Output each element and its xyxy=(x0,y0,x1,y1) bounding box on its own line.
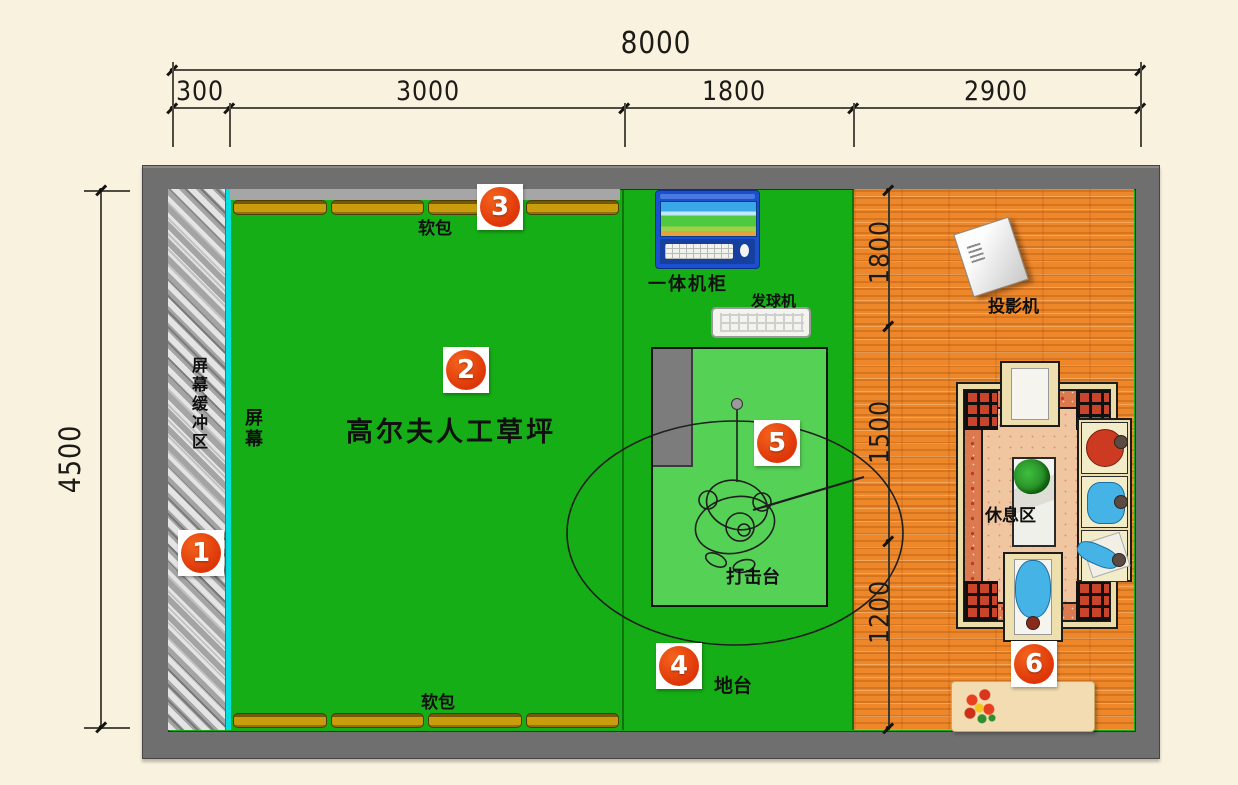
dim-extension xyxy=(229,103,231,147)
label-soft-pack-bottom: 软包 xyxy=(421,688,455,713)
cabinet-top-bar xyxy=(660,194,755,199)
dim-depth-1500: 1500 xyxy=(865,400,896,464)
dim-line-segments xyxy=(172,107,1140,109)
sofa-cushion xyxy=(1081,476,1128,528)
ball-machine-grid xyxy=(720,313,804,332)
tee-mat xyxy=(653,349,693,467)
soft-pack-segment xyxy=(233,713,327,728)
dim-overall-height: 4500 xyxy=(53,425,87,493)
screen-line xyxy=(225,189,231,730)
dim-depth-1200: 1200 xyxy=(865,580,896,644)
label-cabinet: 一体机柜 xyxy=(648,270,728,296)
dim-extension xyxy=(853,103,855,147)
person-head xyxy=(1114,495,1128,509)
sofa-cushion xyxy=(1081,422,1128,474)
rug-corner xyxy=(964,581,998,621)
label-rest-area: 休息区 xyxy=(985,501,1036,526)
soft-pack-strip-bottom xyxy=(233,713,619,728)
label-projector: 投影机 xyxy=(988,292,1039,317)
label-screen-buffer: 屏幕缓冲区 xyxy=(186,357,210,452)
armchair-bottom xyxy=(1003,552,1063,642)
dim-line-height xyxy=(100,190,102,728)
sofa xyxy=(1077,418,1132,582)
marker-1: 1 xyxy=(178,530,224,576)
floor-plan-canvas: 8000 300 3000 1800 2900 4500 1800 1500 1… xyxy=(0,0,1238,785)
soft-pack-segment xyxy=(331,713,425,728)
simulator-cabinet xyxy=(655,190,760,269)
soft-pack-segment xyxy=(233,200,327,215)
cabinet-screen xyxy=(660,201,757,237)
zone-divider xyxy=(852,189,854,730)
marker-6: 6 xyxy=(1011,641,1057,687)
zone-divider xyxy=(622,189,624,730)
label-strike-platform: 打击台 xyxy=(726,563,780,589)
keyboard xyxy=(665,244,733,259)
rug-corner xyxy=(964,390,998,430)
marker-3: 3 xyxy=(477,184,523,230)
label-ball-machine: 发球机 xyxy=(751,290,796,311)
ball-machine xyxy=(711,307,811,338)
dim-extension xyxy=(172,62,174,147)
dim-line-total xyxy=(172,69,1140,71)
dim-extension xyxy=(84,190,130,192)
soft-pack-segment xyxy=(526,200,620,215)
rug-corner xyxy=(1076,581,1110,621)
sofa-cushion xyxy=(1081,530,1128,582)
dim-extension xyxy=(84,727,130,729)
dim-extension xyxy=(1140,62,1142,147)
soft-pack-segment xyxy=(526,713,620,728)
soft-pack-strip-top xyxy=(233,200,619,215)
flower-pot xyxy=(960,686,1000,726)
dim-extension xyxy=(624,103,626,147)
dim-depth-1800: 1800 xyxy=(865,220,896,284)
chair-seat xyxy=(1011,368,1049,420)
dim-seg-1800: 1800 xyxy=(702,76,766,107)
label-soft-pack-top: 软包 xyxy=(418,214,452,239)
projector-vents xyxy=(966,242,985,263)
person-seated xyxy=(1015,560,1051,618)
armchair-top xyxy=(1000,361,1060,427)
cabinet-keyboard-tray xyxy=(660,239,755,264)
mouse xyxy=(740,244,749,257)
soft-pack-segment xyxy=(331,200,425,215)
label-turf: 高尔夫人工草坪 xyxy=(346,410,556,449)
marker-4: 4 xyxy=(656,643,702,689)
dim-seg-3000: 3000 xyxy=(396,76,460,107)
dim-seg-300: 300 xyxy=(176,76,224,107)
soft-pack-segment xyxy=(428,713,522,728)
label-floor-platform: 地台 xyxy=(714,671,752,698)
person-head xyxy=(1026,616,1040,630)
screen-buffer-zone xyxy=(168,189,225,730)
wall-inner-edge xyxy=(230,189,620,200)
marker-5: 5 xyxy=(754,420,800,466)
label-screen: 屏幕 xyxy=(239,408,265,450)
dim-seg-2900: 2900 xyxy=(964,76,1028,107)
person-head xyxy=(1114,435,1128,449)
person-head xyxy=(1112,553,1126,567)
dim-overall-width: 8000 xyxy=(621,26,692,61)
marker-2: 2 xyxy=(443,347,489,393)
